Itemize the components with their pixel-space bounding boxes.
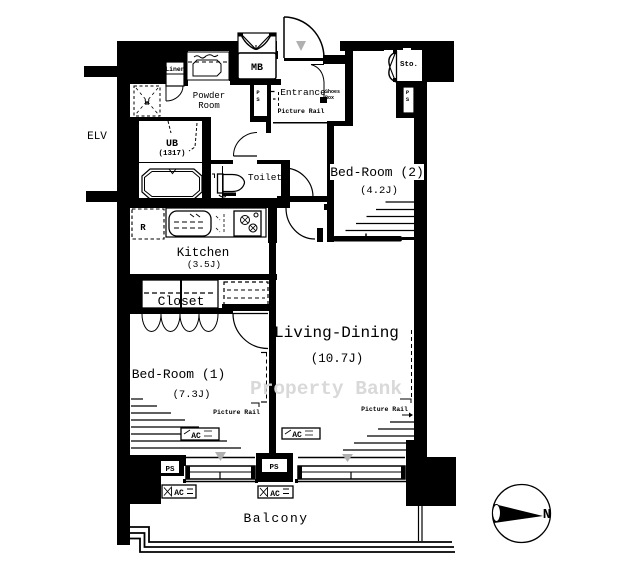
svg-text:Toilet: Toilet bbox=[248, 172, 282, 183]
svg-text:Balcony: Balcony bbox=[243, 511, 308, 526]
svg-text:N: N bbox=[543, 507, 551, 523]
svg-text:ELV: ELV bbox=[87, 131, 107, 143]
svg-text:(1317): (1317) bbox=[158, 150, 185, 158]
svg-text:Room: Room bbox=[198, 101, 220, 111]
svg-text:Linen: Linen bbox=[165, 66, 185, 73]
svg-text:Bed-Room (1): Bed-Room (1) bbox=[132, 367, 226, 382]
svg-text:Closet: Closet bbox=[158, 294, 205, 309]
svg-text:AC: AC bbox=[292, 431, 302, 440]
svg-text:Entrance: Entrance bbox=[280, 87, 326, 98]
svg-text:(7.3J): (7.3J) bbox=[173, 389, 211, 401]
svg-text:Living-Dining: Living-Dining bbox=[274, 324, 399, 342]
svg-text:Picture Rail: Picture Rail bbox=[213, 409, 260, 416]
svg-text:Property Bank: Property Bank bbox=[250, 378, 402, 400]
svg-text:Powder: Powder bbox=[193, 91, 225, 101]
svg-text:(10.7J): (10.7J) bbox=[311, 352, 364, 366]
svg-text:(3.5J): (3.5J) bbox=[187, 259, 221, 270]
svg-text:AC: AC bbox=[174, 489, 184, 498]
svg-text:R: R bbox=[140, 223, 146, 233]
svg-text:Box: Box bbox=[325, 95, 334, 101]
svg-text:AC: AC bbox=[270, 490, 280, 499]
svg-text:PS: PS bbox=[165, 466, 175, 474]
svg-text:Bed-Room (2): Bed-Room (2) bbox=[330, 165, 424, 180]
svg-text:Picture Rail: Picture Rail bbox=[278, 108, 325, 115]
svg-text:AC: AC bbox=[191, 432, 201, 441]
svg-text:UB: UB bbox=[166, 139, 178, 150]
svg-text:MB: MB bbox=[251, 63, 263, 74]
svg-text:PS: PS bbox=[269, 464, 279, 472]
svg-text:Kitchen: Kitchen bbox=[177, 246, 230, 260]
svg-text:(4.2J): (4.2J) bbox=[360, 185, 398, 197]
svg-text:Sto.: Sto. bbox=[400, 61, 418, 69]
svg-text:Picture Rail: Picture Rail bbox=[361, 406, 408, 413]
